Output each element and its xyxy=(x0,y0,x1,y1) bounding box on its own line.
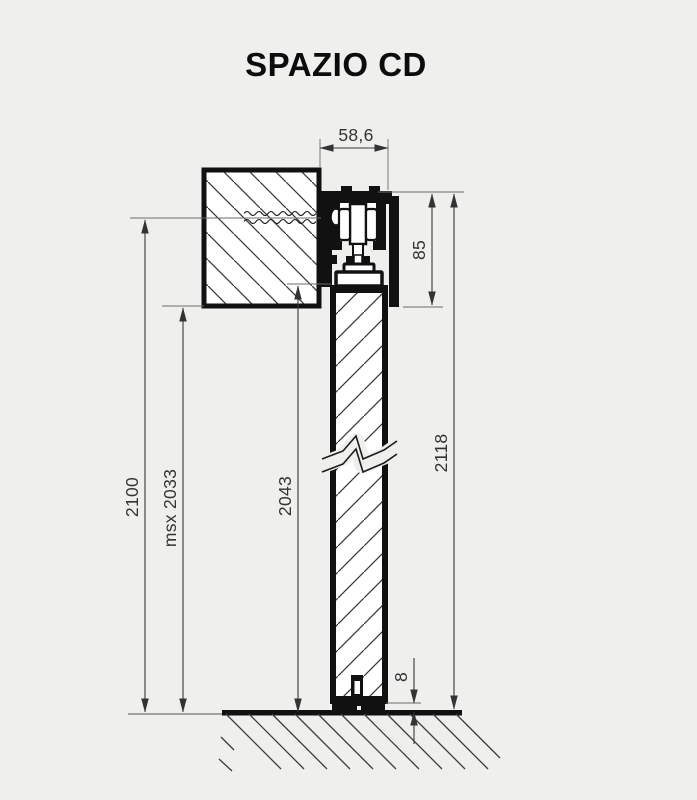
dimension-label-track-width: 58,6 xyxy=(338,125,373,145)
spazio-cd-section-drawing: SPAZIO CD xyxy=(0,0,697,800)
dimension-label-track-height: 85 xyxy=(409,240,429,260)
dimension-label-floor-gap: 8 xyxy=(391,672,411,682)
door-panel xyxy=(322,285,397,712)
bracket-nub-lower xyxy=(332,255,337,264)
dimension-label-overall-height: 2118 xyxy=(431,434,451,473)
dimension-label-fixing-height: 2100 xyxy=(122,477,142,517)
door-edge-left xyxy=(330,285,336,704)
door-hatch xyxy=(336,293,382,697)
door-cap-top xyxy=(330,285,388,293)
dimension-label-msx-height: msx 2033 xyxy=(160,469,180,547)
roller-carriage xyxy=(339,204,377,244)
door-edge-right xyxy=(382,285,388,704)
technical-drawing-page: SPAZIO CD xyxy=(0,0,697,800)
wall-bracket xyxy=(321,191,332,287)
page-title: SPAZIO CD xyxy=(245,46,427,83)
wall-section xyxy=(204,170,319,306)
door-bracket xyxy=(336,264,382,286)
dimension-label-door-height: 2043 xyxy=(275,476,295,516)
